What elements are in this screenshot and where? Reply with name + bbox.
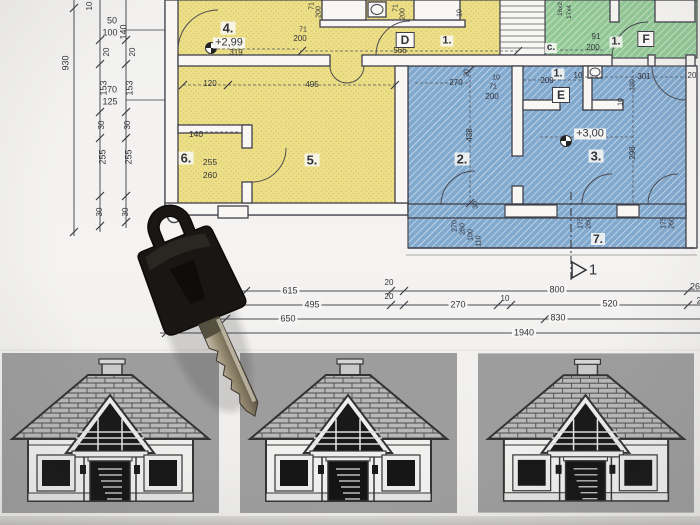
house-elevation-3 [478, 353, 694, 512]
house-elevations [0, 350, 700, 513]
table-edge-strip [0, 516, 700, 525]
level-symbol-blue [561, 136, 572, 147]
staircase-region [500, 0, 545, 55]
house-elevation-2 [240, 353, 457, 513]
blue-apartment-region [408, 66, 696, 248]
photo-of-blueprint-key-and-houses: 9301020153302553014020153302553050100701… [0, 0, 700, 525]
house-elevation-1 [2, 353, 219, 513]
level-symbol-yellow [206, 43, 217, 54]
left-dim-chains [74, 0, 165, 236]
floorplan-drawing [0, 0, 700, 525]
